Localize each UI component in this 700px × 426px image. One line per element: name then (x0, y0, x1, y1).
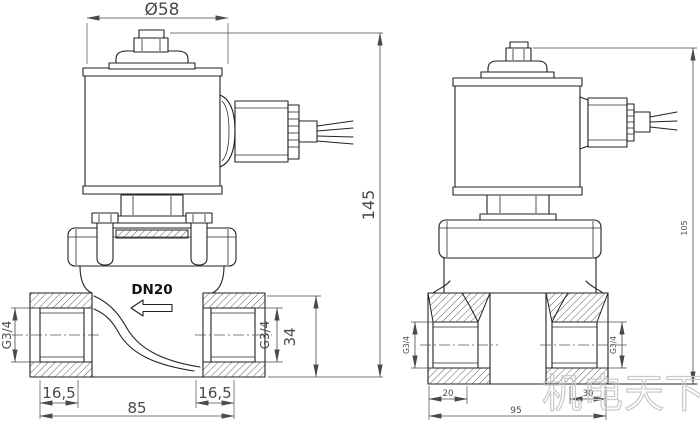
dim-offset-left-text: 16,5 (42, 384, 75, 402)
dim-offset-left-20: 20 (429, 386, 467, 420)
dim-offset-left-text: 20 (443, 389, 454, 399)
connector-flange (627, 104, 634, 141)
port-right-wall-top (203, 293, 265, 308)
connector-plug (299, 121, 317, 142)
side-body (420, 281, 697, 384)
valve-technical-drawing: DN20 Ø58 145 G3/4 G3/4 (0, 0, 700, 426)
coil-body (85, 76, 220, 186)
stem-washer (113, 216, 191, 223)
dim-offset-left: 16,5 (40, 380, 78, 419)
body-neck-left (80, 266, 92, 293)
front-connector (220, 95, 353, 167)
front-view: DN20 Ø58 145 G3/4 G3/4 (0, 0, 383, 419)
flow-arrow-icon (131, 300, 172, 316)
port-left-wall-top (30, 293, 92, 308)
coil-body (455, 86, 580, 187)
side-bonnet (439, 195, 601, 293)
front-coil-assembly (83, 30, 222, 194)
front-body: DN20 (12, 266, 272, 377)
watermark-text: 机电天下 (542, 371, 700, 417)
bolt-cap-left (92, 213, 118, 223)
bonnet-plate (439, 220, 601, 258)
body-block (444, 258, 596, 293)
bolt-shank-left (97, 223, 113, 265)
dim-thread-right-text: G3/4 (258, 321, 272, 350)
dim-port-height-text: 34 (281, 327, 299, 346)
stem-nut (121, 195, 183, 216)
coil-bottom-ring (83, 186, 222, 194)
front-bonnet (68, 195, 236, 266)
port-left-wall-bottom (30, 362, 92, 377)
dim-width-text: 95 (510, 406, 521, 416)
port-left-wall-bottom (428, 368, 490, 384)
body-neck-right (212, 266, 224, 293)
dim-offset-right-text: 16,5 (198, 384, 231, 402)
bolt-shank-right (191, 223, 207, 265)
lead-wires (650, 112, 677, 130)
top-bolt (506, 48, 531, 61)
dim-height-text: 145 (359, 190, 378, 221)
dim-diameter-text: Ø58 (144, 0, 179, 20)
side-view: G3/4 G3/4 20 30 95 105 (402, 42, 697, 420)
dim-thread-right-text: G3/4 (609, 336, 618, 354)
nominal-size-label: DN20 (131, 282, 172, 298)
dim-offset-right: 16,5 (196, 380, 234, 419)
connector-wedge (580, 97, 588, 149)
coil-cap-base (109, 63, 195, 69)
bolt-cap-right (186, 213, 212, 223)
connector-plug (634, 112, 650, 132)
port-right-wall-bottom (203, 362, 265, 377)
dim-height-text: 105 (680, 220, 689, 235)
coil-bottom-ring (453, 187, 582, 195)
coil-cap-base (481, 72, 554, 78)
port-right-wall-top (546, 293, 608, 322)
coil-top-ring (453, 78, 582, 86)
side-coil-assembly (453, 42, 582, 195)
dim-width-text: 85 (127, 399, 146, 417)
dim-thread-left-text: G3/4 (402, 336, 411, 354)
side-connector (580, 97, 677, 149)
stem-nut (487, 195, 549, 214)
lead-wires (317, 121, 353, 144)
top-bolt-cap (510, 42, 528, 48)
seat-curve-lower (94, 309, 194, 371)
top-bolt (134, 38, 168, 52)
connector-flange (288, 105, 299, 159)
top-bolt-cap (139, 30, 164, 38)
connector-bulge (220, 95, 235, 167)
gasket (116, 230, 188, 238)
connector-block (235, 101, 288, 162)
stem-washer (480, 214, 556, 220)
dim-thread-left-text: G3/4 (0, 321, 14, 350)
